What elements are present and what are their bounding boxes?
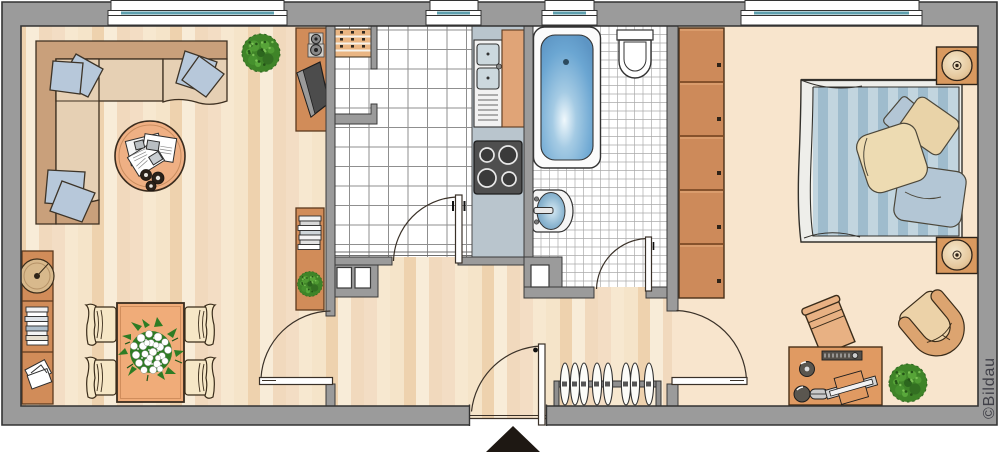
svg-text:©Bildau: ©Bildau <box>981 357 998 419</box>
